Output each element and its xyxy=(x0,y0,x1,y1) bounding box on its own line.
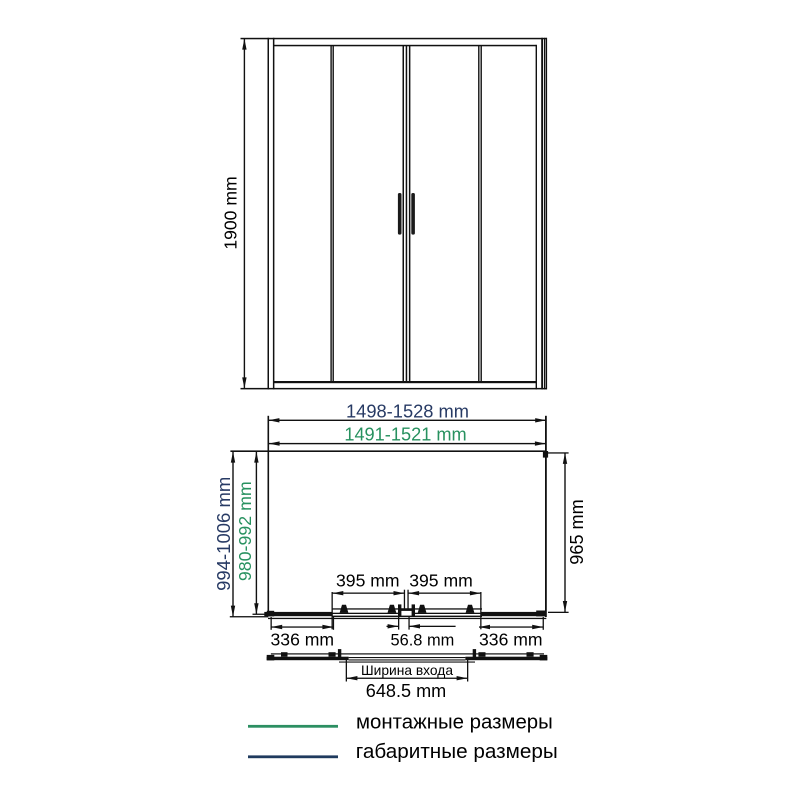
svg-text:Ширина входа: Ширина входа xyxy=(361,663,453,678)
svg-text:648.5 mm: 648.5 mm xyxy=(366,681,446,701)
svg-text:965 mm: 965 mm xyxy=(567,499,587,564)
svg-text:336 mm: 336 mm xyxy=(479,629,543,649)
svg-text:1498-1528 mm: 1498-1528 mm xyxy=(346,401,469,422)
svg-text:336 mm: 336 mm xyxy=(271,629,335,649)
svg-text:монтажные размеры: монтажные размеры xyxy=(356,712,553,734)
svg-text:395 mm: 395 mm xyxy=(336,571,400,591)
svg-text:1900 mm: 1900 mm xyxy=(221,176,241,249)
svg-text:56.8 mm: 56.8 mm xyxy=(391,631,455,649)
svg-text:980-992 mm: 980-992 mm xyxy=(235,481,255,581)
svg-text:994-1006 mm: 994-1006 mm xyxy=(213,477,234,591)
svg-text:1491-1521 mm: 1491-1521 mm xyxy=(344,424,466,444)
svg-text:395 mm: 395 mm xyxy=(409,571,473,591)
svg-text:габаритные размеры: габаритные размеры xyxy=(356,740,558,763)
